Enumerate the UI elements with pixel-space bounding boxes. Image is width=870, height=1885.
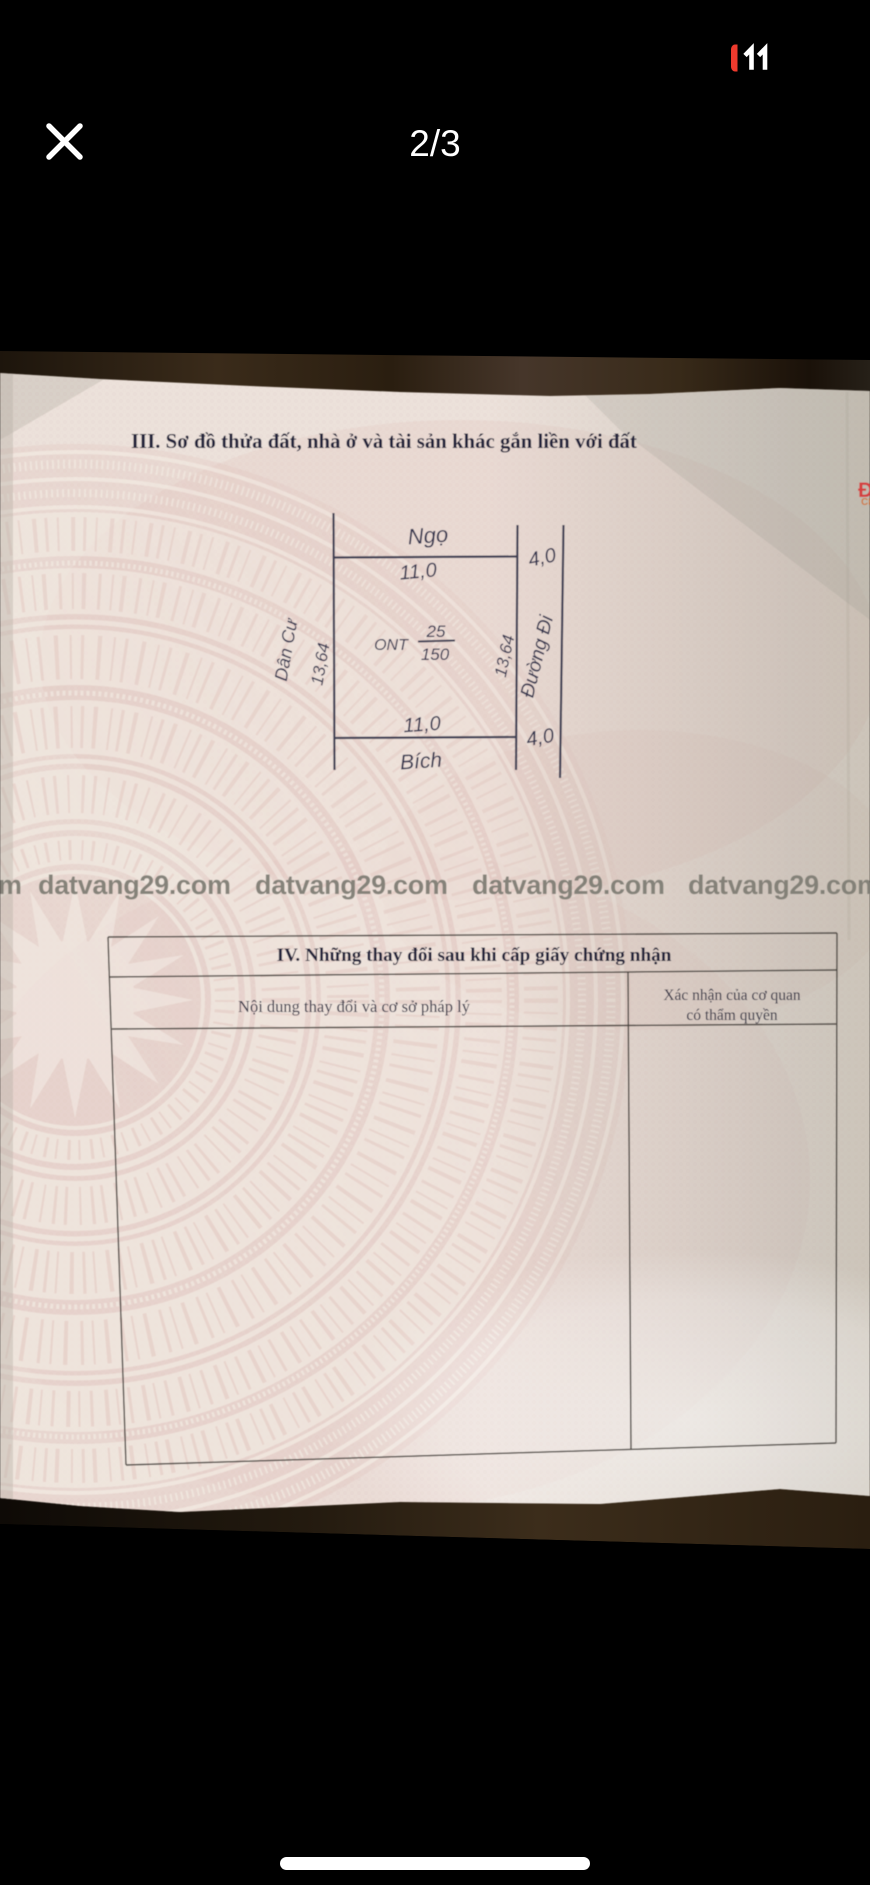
svg-text:datvang29.com: datvang29.com xyxy=(38,870,231,900)
svg-text:datvang29.com: datvang29.com xyxy=(255,870,448,900)
svg-text:III. Sơ đồ thửa đất, nhà ở và: III. Sơ đồ thửa đất, nhà ở và tài sản kh… xyxy=(131,430,637,453)
svg-text:2/3: 2/3 xyxy=(409,123,460,164)
svg-text:Ngọ: Ngọ xyxy=(407,522,449,550)
svg-text:150: 150 xyxy=(421,645,450,664)
svg-text:m: m xyxy=(0,870,22,900)
svg-text:có thẩm quyền: có thẩm quyền xyxy=(686,1007,778,1024)
svg-text:CH: CH xyxy=(861,497,870,508)
svg-text:datvang29.com: datvang29.com xyxy=(472,870,665,900)
svg-text:11,0: 11,0 xyxy=(398,559,437,584)
svg-text:ONT: ONT xyxy=(374,637,409,654)
svg-text:Nội dung thay đổi và cơ sở phá: Nội dung thay đổi và cơ sở pháp lý xyxy=(238,997,471,1016)
svg-text:Bích: Bích xyxy=(399,749,443,775)
svg-text:IV. Những thay đổi sau khi cấp: IV. Những thay đổi sau khi cấp giấy chứn… xyxy=(277,945,672,966)
svg-text:Xác nhận của cơ quan: Xác nhận của cơ quan xyxy=(663,987,801,1004)
svg-text:25: 25 xyxy=(426,622,446,641)
svg-text:11,0: 11,0 xyxy=(403,713,442,738)
svg-text:datvang29.com: datvang29.com xyxy=(688,870,870,900)
